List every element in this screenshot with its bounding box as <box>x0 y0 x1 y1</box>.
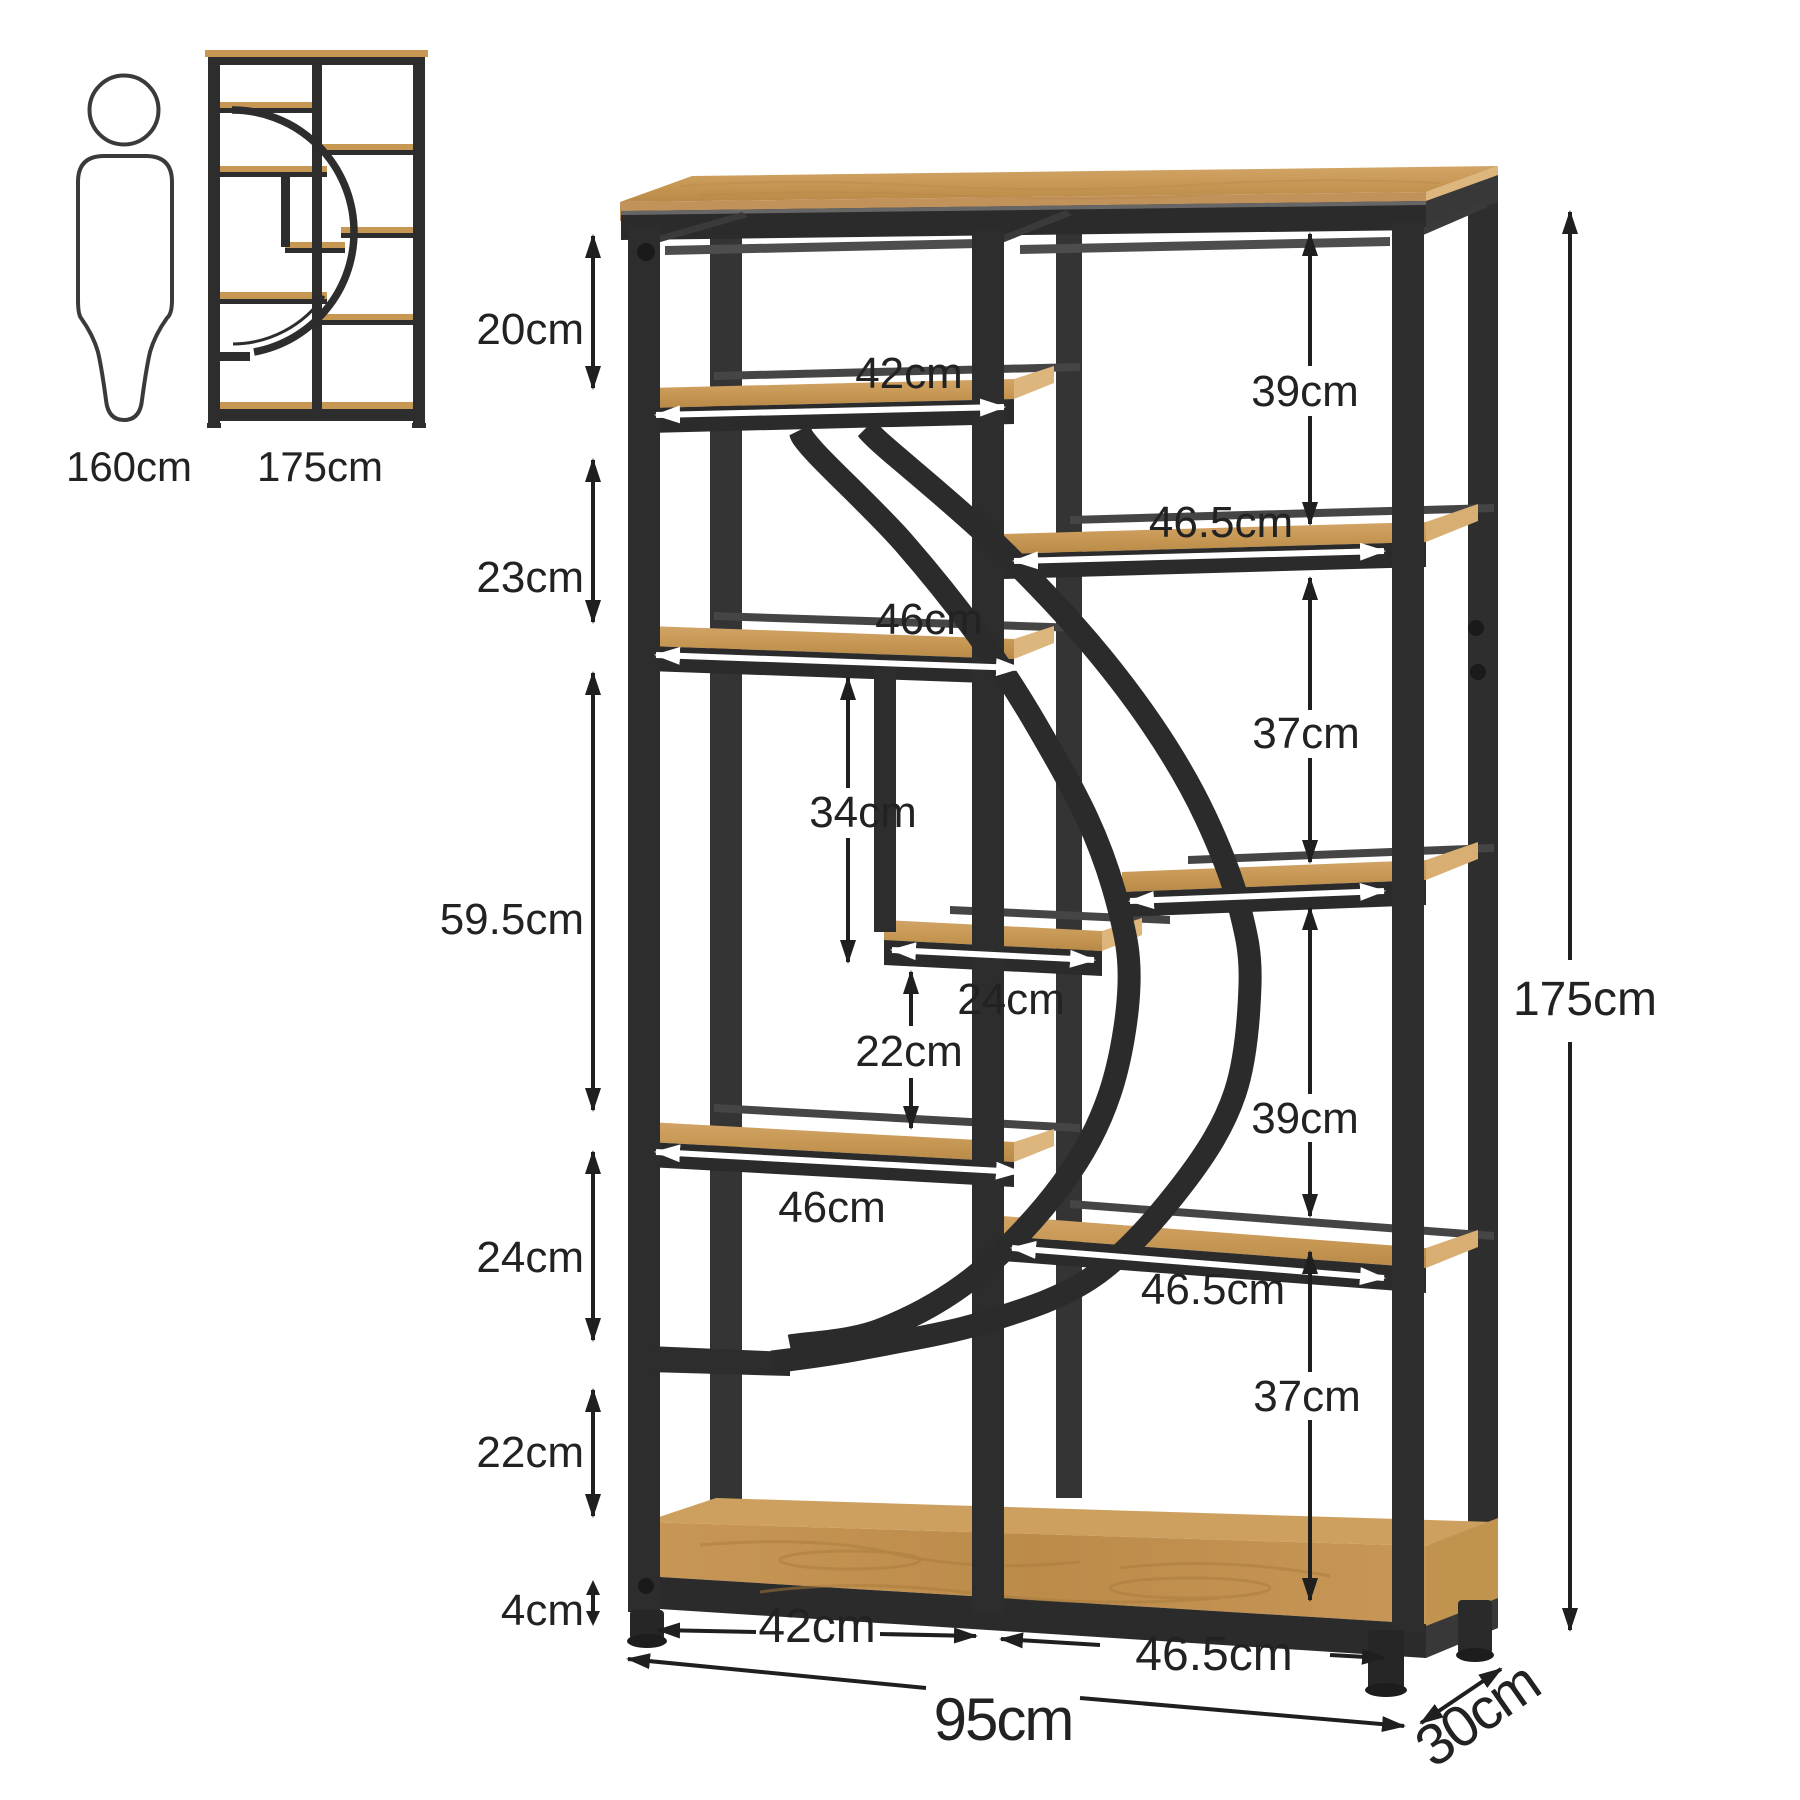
svg-text:175cm: 175cm <box>1513 973 1657 1026</box>
svg-text:42cm: 42cm <box>758 1600 875 1653</box>
svg-text:46cm: 46cm <box>778 1183 886 1232</box>
svg-text:22cm: 22cm <box>855 1027 963 1076</box>
svg-text:46.5cm: 46.5cm <box>1149 498 1293 547</box>
svg-text:160cm: 160cm <box>66 443 192 490</box>
svg-text:34cm: 34cm <box>809 788 917 837</box>
svg-text:4cm: 4cm <box>501 1586 584 1635</box>
svg-text:37cm: 37cm <box>1253 1372 1361 1421</box>
svg-text:23cm: 23cm <box>476 553 584 602</box>
svg-text:24cm: 24cm <box>957 975 1065 1024</box>
svg-text:42cm: 42cm <box>855 349 963 398</box>
svg-text:24cm: 24cm <box>476 1233 584 1282</box>
svg-text:46.5cm: 46.5cm <box>1135 1628 1292 1681</box>
svg-text:39cm: 39cm <box>1251 1094 1359 1143</box>
svg-text:59.5cm: 59.5cm <box>440 895 584 944</box>
svg-text:39cm: 39cm <box>1251 367 1359 416</box>
svg-text:37cm: 37cm <box>1252 709 1360 758</box>
svg-text:22cm: 22cm <box>476 1428 584 1477</box>
svg-text:46cm: 46cm <box>875 595 983 644</box>
svg-text:95cm: 95cm <box>934 1686 1073 1753</box>
svg-text:46.5cm: 46.5cm <box>1141 1265 1285 1314</box>
svg-text:175cm: 175cm <box>257 443 383 490</box>
svg-text:30cm: 30cm <box>1404 1650 1551 1780</box>
svg-text:20cm: 20cm <box>476 305 584 354</box>
